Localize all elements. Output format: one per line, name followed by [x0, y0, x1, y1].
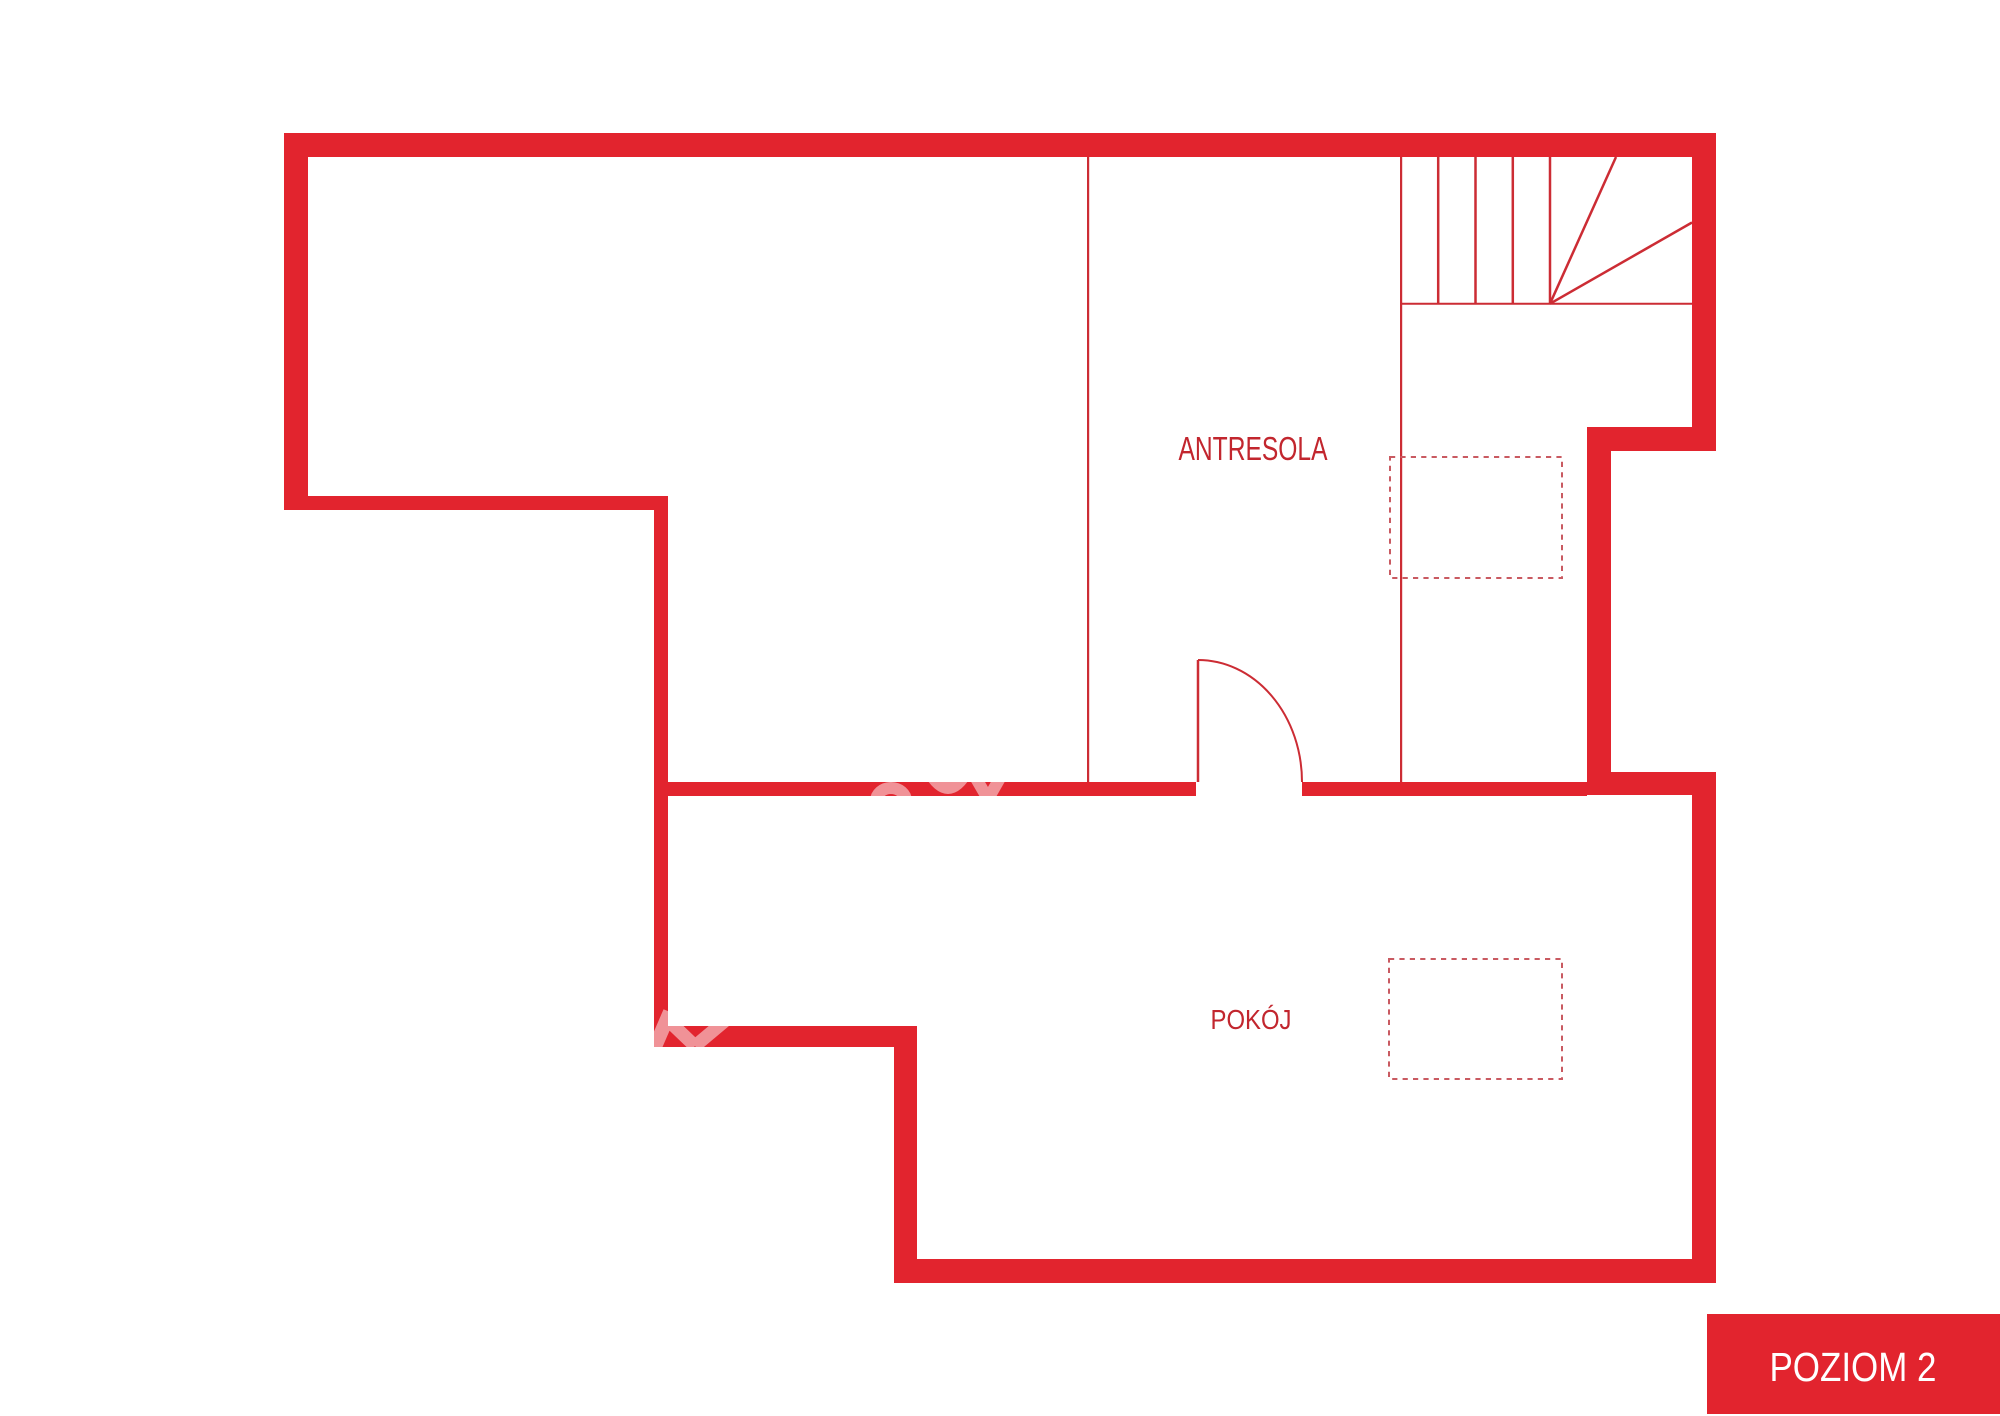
svg-text:POKÓJ: POKÓJ	[1211, 1004, 1292, 1035]
svg-text:POZIOM 2: POZIOM 2	[1770, 1344, 1937, 1390]
svg-text:ANTRESOLA: ANTRESOLA	[1179, 431, 1328, 468]
